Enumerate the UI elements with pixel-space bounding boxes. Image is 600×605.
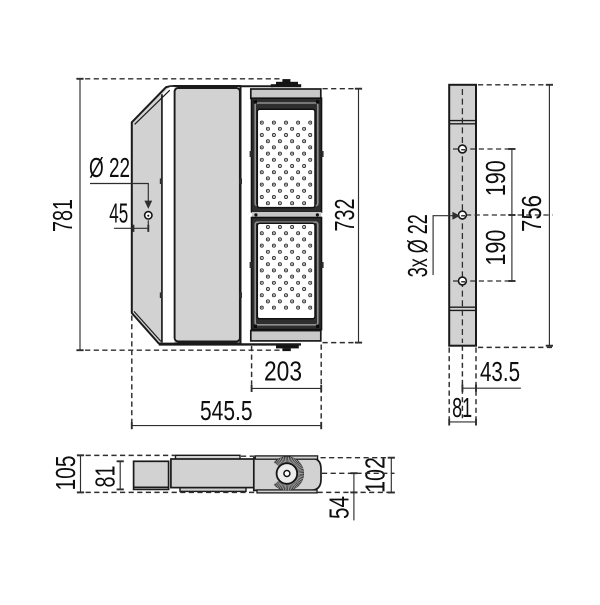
- svg-text:Ø 22: Ø 22: [89, 152, 130, 183]
- svg-text:3x Ø 22: 3x Ø 22: [402, 214, 433, 277]
- svg-text:732: 732: [329, 199, 360, 232]
- svg-text:81: 81: [90, 466, 121, 488]
- svg-text:45: 45: [109, 197, 128, 228]
- svg-text:203: 203: [264, 356, 302, 387]
- svg-text:781: 781: [47, 199, 78, 232]
- svg-text:54: 54: [324, 496, 355, 519]
- svg-text:102: 102: [360, 457, 391, 493]
- svg-text:105: 105: [50, 456, 81, 491]
- svg-text:190: 190: [480, 230, 511, 266]
- svg-text:190: 190: [480, 160, 511, 196]
- svg-text:756: 756: [516, 195, 547, 232]
- svg-text:545.5: 545.5: [200, 395, 253, 426]
- svg-text:43.5: 43.5: [480, 356, 520, 387]
